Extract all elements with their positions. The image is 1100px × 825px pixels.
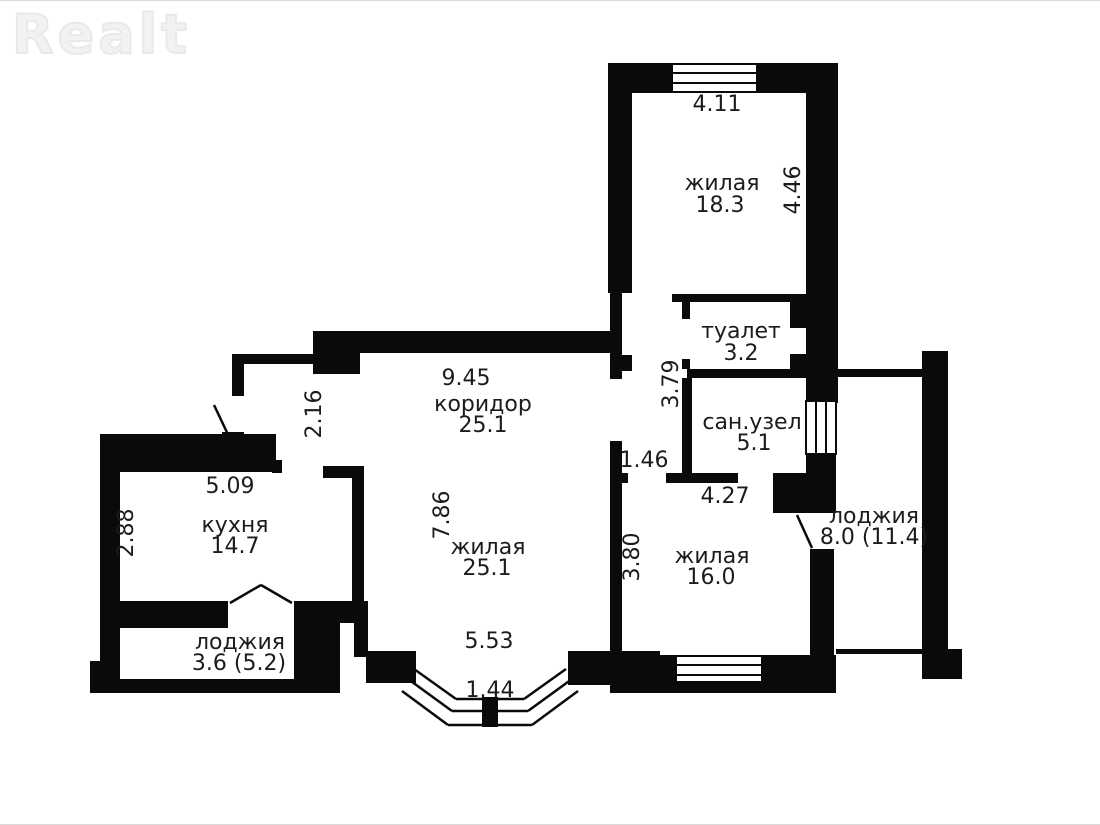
window-bottom-room: [676, 656, 762, 682]
dim-room16-height: 3.80: [622, 533, 644, 582]
room-bathroom-area: 5.1: [737, 433, 772, 455]
dim-top-room-width: 4.11: [693, 94, 742, 116]
dim-kitchen-height: 2.88: [116, 509, 138, 558]
dim-kitchen-width: 5.09: [206, 476, 255, 498]
room-toilet-area: 3.2: [724, 343, 759, 365]
room-living-top-area: 18.3: [696, 195, 745, 217]
dim-corridor-step: 2.16: [304, 390, 326, 439]
dim-top-room-height: 4.46: [783, 166, 805, 215]
floorplan-page: Realt: [0, 0, 1100, 825]
dim-corridor-width: 9.45: [442, 368, 491, 390]
room-toilet-name: туалет: [701, 321, 781, 343]
kitchen-loggia-door-swing: [230, 585, 292, 603]
floorplan-drawing: [0, 1, 1100, 825]
room-living-right-area: 16.0: [687, 567, 736, 589]
room-loggia-left-area: 3.6 (5.2): [192, 653, 286, 675]
room-living-top-name: жилая: [685, 173, 760, 195]
room-kitchen-area: 14.7: [211, 536, 260, 558]
room-corridor-area: 25.1: [459, 415, 508, 437]
room-loggia-right-area: 8.0 (11.4): [820, 527, 928, 549]
dim-bay-window-width: 1.44: [466, 680, 515, 702]
walls: [90, 63, 962, 693]
dim-living-width: 5.53: [465, 631, 514, 653]
loggia-right-door-swing: [797, 515, 812, 548]
dim-room16-opening: 1.46: [620, 450, 669, 472]
window-bathroom-loggia: [806, 401, 836, 454]
window-top-room: [672, 64, 757, 92]
room-living-center-area: 25.1: [463, 558, 512, 580]
dim-room16-width: 4.27: [701, 486, 750, 508]
dim-living-height: 7.86: [432, 491, 454, 540]
dim-wc-nook-height: 3.79: [661, 360, 683, 409]
